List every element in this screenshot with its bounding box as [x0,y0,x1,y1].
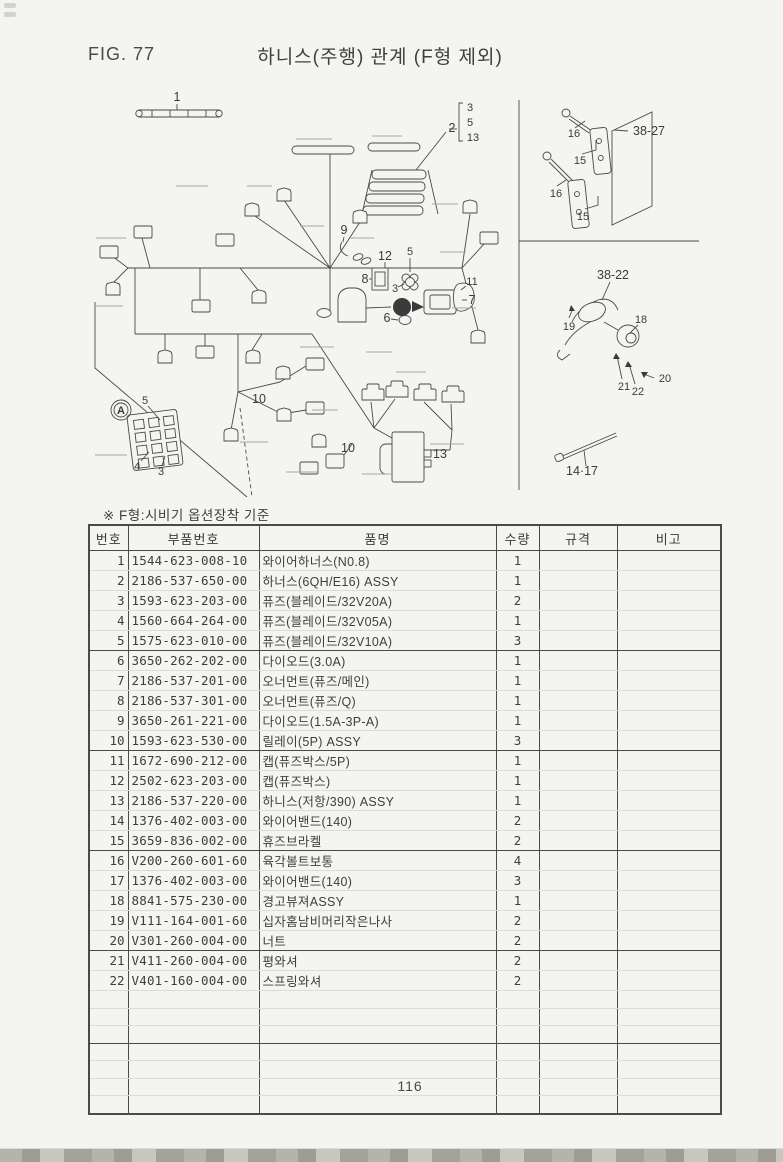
cell-qty: 1 [496,611,539,631]
diagram-callout: 3 [467,102,473,114]
table-row: 153659-836-002-00휴즈브라켈2 [89,831,721,851]
cell-part-no [128,1043,259,1061]
cell-part-no: V401-160-004-00 [128,971,259,991]
cell-qty: 4 [496,851,539,871]
cell-qty: 1 [496,691,539,711]
table-row-empty [89,1061,721,1079]
diagram-callout-A-circled: A [117,405,125,417]
harness-artwork [95,103,498,497]
cell-part-no [128,991,259,1009]
cell-no [89,1061,128,1079]
cell-part-no [128,1078,259,1096]
cell-no: 9 [89,711,128,731]
cell-spec [539,551,617,571]
diagram-callout: 2 [449,121,456,135]
cell-remark [617,991,721,1009]
cell-spec [539,671,617,691]
cell-no: 4 [89,611,128,631]
cell-name [259,1026,496,1044]
cell-no: 1 [89,551,128,571]
cell-no: 13 [89,791,128,811]
cell-remark [617,551,721,571]
diagram-callout: 12 [378,249,392,263]
table-row: 22V401-160-004-00스프링와셔2 [89,971,721,991]
col-header-remark: 비고 [617,525,721,551]
table-row: 63650-262-202-00다이오드(3.0A)1 [89,651,721,671]
cell-spec [539,711,617,731]
cell-name: 퓨즈(블레이드/32V10A) [259,631,496,651]
diagram-callout: 5 [407,246,413,258]
table-row: 72186-537-201-00오너먼트(퓨즈/메인)1 [89,671,721,691]
page-number: 116 [378,1078,442,1094]
cell-spec [539,1096,617,1114]
cell-remark [617,891,721,911]
cell-no: 19 [89,911,128,931]
cell-no: 22 [89,971,128,991]
cell-remark [617,571,721,591]
diagram-callout: 11 [466,276,477,288]
cell-part-no [128,1061,259,1079]
cell-qty: 3 [496,871,539,891]
diagram-callout: 5 [142,395,148,407]
cell-remark [617,751,721,771]
cell-spec [539,1061,617,1079]
cell-no: 8 [89,691,128,711]
table-header-row: 번호 부품번호 품명 수량 규격 비고 [89,525,721,551]
cell-qty [496,1061,539,1079]
cell-remark [617,691,721,711]
cell-part-no: V111-164-001-60 [128,911,259,931]
cell-name [259,1096,496,1114]
cell-name [259,1008,496,1026]
cell-spec [539,911,617,931]
cell-qty: 1 [496,791,539,811]
diagram-callout: 6 [384,311,391,325]
cell-part-no: V411-260-004-00 [128,951,259,971]
cell-qty: 2 [496,911,539,931]
cell-no: 16 [89,851,128,871]
cell-name [259,991,496,1009]
cell-qty [496,1008,539,1026]
diagram-callout: 16 [568,128,580,140]
cell-qty: 3 [496,731,539,751]
table-row: 171376-402-003-00와이어밴드(140)3 [89,871,721,891]
cell-remark [617,851,721,871]
cell-remark [617,1096,721,1114]
diagram-callout: 5 [467,117,473,129]
cell-remark [617,971,721,991]
cell-spec [539,611,617,631]
diagram-callout: 19 [563,321,575,333]
table-row: 141376-402-003-00와이어밴드(140)2 [89,811,721,831]
cell-no: 6 [89,651,128,671]
cell-no: 14 [89,811,128,831]
cell-remark [617,951,721,971]
col-header-name: 품명 [259,525,496,551]
diagram-callout: 3 [158,466,164,478]
table-row: 31593-623-203-00퓨즈(블레이드/32V20A)2 [89,591,721,611]
cell-name: 캡(퓨즈박스) [259,771,496,791]
cell-remark [617,651,721,671]
cell-qty: 3 [496,631,539,651]
cell-qty: 1 [496,571,539,591]
table-row: 51575-623-010-00퓨즈(블레이드/32V10A)3 [89,631,721,651]
cell-remark [617,1008,721,1026]
harness-diagram: 1 2 3 5 13 9 12 5 8 3 6 11 7 A A 5 4 3 1… [0,0,783,515]
cell-qty [496,1078,539,1096]
cell-part-no [128,1096,259,1114]
diagram-callout: 38-27 [633,124,665,138]
cell-remark [617,811,721,831]
cell-no: 5 [89,631,128,651]
table-row: 132186-537-220-00하니스(저항/390) ASSY1 [89,791,721,811]
cell-part-no: V200-260-601-60 [128,851,259,871]
cell-part-no: 1544-623-008-10 [128,551,259,571]
cell-name: 오너먼트(퓨즈/Q) [259,691,496,711]
table-row: 188841-575-230-00경고뷰져ASSY1 [89,891,721,911]
cell-remark [617,611,721,631]
cell-qty: 1 [496,711,539,731]
cell-no [89,1026,128,1044]
cell-qty: 2 [496,931,539,951]
cell-name: 와이어밴드(140) [259,871,496,891]
cell-part-no: 3659-836-002-00 [128,831,259,851]
panel-14-17 [554,433,617,466]
cell-spec [539,1078,617,1096]
col-header-spec: 규격 [539,525,617,551]
table-row: 41560-664-264-00퓨즈(블레이드/32V05A)1 [89,611,721,631]
cell-spec [539,1008,617,1026]
table-row: 93650-261-221-00다이오드(1.5A-3P-A)1 [89,711,721,731]
col-header-part-no: 부품번호 [128,525,259,551]
cell-no [89,1078,128,1096]
table-row: 16V200-260-601-60육각볼트보통4 [89,851,721,871]
panel-38-22 [557,282,654,384]
cell-part-no: 2502-623-203-00 [128,771,259,791]
cell-qty: 1 [496,551,539,571]
cell-spec [539,891,617,911]
table-row-empty [89,1096,721,1114]
cell-remark [617,771,721,791]
cell-name [259,1043,496,1061]
cell-part-no: 1593-623-530-00 [128,731,259,751]
diagram-callout: 16 [550,188,562,200]
cell-qty [496,1096,539,1114]
diagram-callout: 13 [433,447,447,461]
table-row: 11544-623-008-10와이어하너스(N0.8)1 [89,551,721,571]
cell-remark [617,731,721,751]
cell-part-no: 1575-623-010-00 [128,631,259,651]
cell-no: 18 [89,891,128,911]
diagram-callout: 1 [174,90,181,104]
cell-name: 평와셔 [259,951,496,971]
cell-spec [539,971,617,991]
cell-spec [539,591,617,611]
cell-part-no: 1593-623-203-00 [128,591,259,611]
cell-spec [539,631,617,651]
cell-no: 20 [89,931,128,951]
cell-remark [617,591,721,611]
table-row-empty [89,991,721,1009]
cell-spec [539,811,617,831]
cell-remark [617,1026,721,1044]
diagram-callout: 8 [362,272,369,286]
cell-no: 21 [89,951,128,971]
cell-name: 스프링와셔 [259,971,496,991]
cell-no: 3 [89,591,128,611]
cell-qty [496,1043,539,1061]
cell-name: 캡(퓨즈박스/5P) [259,751,496,771]
cell-no [89,1043,128,1061]
cell-spec [539,731,617,751]
cell-spec [539,571,617,591]
cell-remark [617,1078,721,1096]
cell-part-no: 2186-537-201-00 [128,671,259,691]
diagram-callout: 9 [341,223,348,237]
part-1-strip [136,104,222,117]
table-row-empty [89,1008,721,1026]
cell-name: 릴레이(5P) ASSY [259,731,496,751]
diagram-callout: 14·17 [566,464,598,478]
diagram-callout: 15 [574,155,586,167]
table-row: 111672-690-212-00캡(퓨즈박스/5P)1 [89,751,721,771]
diagram-callout: 10 [252,392,266,406]
cell-spec [539,691,617,711]
cell-part-no: 1376-402-003-00 [128,811,259,831]
diagram-callout: 21 [618,381,630,393]
cell-spec [539,791,617,811]
table-row: 101593-623-530-00릴레이(5P) ASSY3 [89,731,721,751]
cell-remark [617,711,721,731]
table-row: 22186-537-650-00하너스(6QH/E16) ASSY1 [89,571,721,591]
cell-qty: 1 [496,671,539,691]
cell-spec [539,1043,617,1061]
cell-part-no: 3650-262-202-00 [128,651,259,671]
cell-qty: 2 [496,971,539,991]
cell-name: 하니스(저항/390) ASSY [259,791,496,811]
cell-no: 15 [89,831,128,851]
cell-part-no: 8841-575-230-00 [128,891,259,911]
cell-name: 너트 [259,931,496,951]
table-row: 82186-537-301-00오너먼트(퓨즈/Q)1 [89,691,721,711]
cell-name: 십자홈남비머리작은나사 [259,911,496,931]
cell-no [89,1096,128,1114]
cell-spec [539,751,617,771]
cell-name: 육각볼트보통 [259,851,496,871]
table-row: 19V111-164-001-60십자홈남비머리작은나사2 [89,911,721,931]
table-row: 122502-623-203-00캡(퓨즈박스)1 [89,771,721,791]
diagram-callout: 38-22 [597,268,629,282]
cell-no [89,991,128,1009]
cell-no: 11 [89,751,128,771]
cell-remark [617,671,721,691]
cell-remark [617,791,721,811]
cell-remark [617,1061,721,1079]
diagram-callout: 20 [659,373,671,385]
cell-qty [496,991,539,1009]
cell-remark [617,831,721,851]
cell-remark [617,911,721,931]
cell-no [89,1008,128,1026]
cell-remark [617,631,721,651]
diagram-callout-A-filled: A [398,302,406,314]
cell-part-no: 3650-261-221-00 [128,711,259,731]
col-header-no: 번호 [89,525,128,551]
diagram-callout: 10 [341,441,355,455]
cell-name: 휴즈브라켈 [259,831,496,851]
cell-spec [539,991,617,1009]
cell-part-no [128,1008,259,1026]
cell-no: 17 [89,871,128,891]
cell-name: 오너먼트(퓨즈/메인) [259,671,496,691]
cell-qty: 1 [496,651,539,671]
table-row-empty [89,1026,721,1044]
cell-no: 7 [89,671,128,691]
cell-remark [617,871,721,891]
diagram-callout: 18 [635,314,647,326]
table-row: 21V411-260-004-00평와셔2 [89,951,721,971]
cell-qty: 2 [496,811,539,831]
cell-qty: 2 [496,951,539,971]
cell-qty: 1 [496,891,539,911]
table-note: ※ F형:시비기 옵션장착 기준 [103,504,270,524]
cell-name: 퓨즈(블레이드/32V05A) [259,611,496,631]
col-header-qty: 수량 [496,525,539,551]
cell-part-no: 2186-537-650-00 [128,571,259,591]
cell-qty: 2 [496,591,539,611]
diagram-callout: 15 [577,211,589,223]
cell-name: 다이오드(3.0A) [259,651,496,671]
cell-spec [539,1026,617,1044]
cell-name: 다이오드(1.5A-3P-A) [259,711,496,731]
cell-name: 경고뷰져ASSY [259,891,496,911]
cell-qty: 1 [496,751,539,771]
cell-part-no [128,1026,259,1044]
cell-part-no: V301-260-004-00 [128,931,259,951]
diagram-callout: 7 [469,293,476,307]
diagram-callout: 4 [134,461,140,473]
cell-name [259,1061,496,1079]
cell-no: 10 [89,731,128,751]
cell-spec [539,931,617,951]
cell-qty [496,1026,539,1044]
cell-qty: 2 [496,831,539,851]
cell-spec [539,871,617,891]
diagram-callout: 3 [392,283,398,295]
cell-spec [539,771,617,791]
cell-name: 퓨즈(블레이드/32V20A) [259,591,496,611]
cell-spec [539,831,617,851]
diagram-callout: 13 [467,132,479,144]
parts-table: 번호 부품번호 품명 수량 규격 비고 11544-623-008-10와이어하… [88,524,722,1115]
cell-remark [617,1043,721,1061]
cell-remark [617,931,721,951]
cell-no: 2 [89,571,128,591]
cell-qty: 1 [496,771,539,791]
table-row-empty [89,1043,721,1061]
scan-edge-artifact [0,1148,783,1162]
cell-spec [539,951,617,971]
table-row: 20V301-260-004-00너트2 [89,931,721,951]
cell-part-no: 1560-664-264-00 [128,611,259,631]
cell-spec [539,851,617,871]
cell-part-no: 1376-402-003-00 [128,871,259,891]
cell-part-no: 2186-537-301-00 [128,691,259,711]
cell-name: 하너스(6QH/E16) ASSY [259,571,496,591]
cell-part-no: 1672-690-212-00 [128,751,259,771]
cell-no: 12 [89,771,128,791]
cell-name: 와이어하너스(N0.8) [259,551,496,571]
cell-spec [539,651,617,671]
diagram-callout: 22 [632,386,644,398]
cell-part-no: 2186-537-220-00 [128,791,259,811]
cell-name: 와이어밴드(140) [259,811,496,831]
